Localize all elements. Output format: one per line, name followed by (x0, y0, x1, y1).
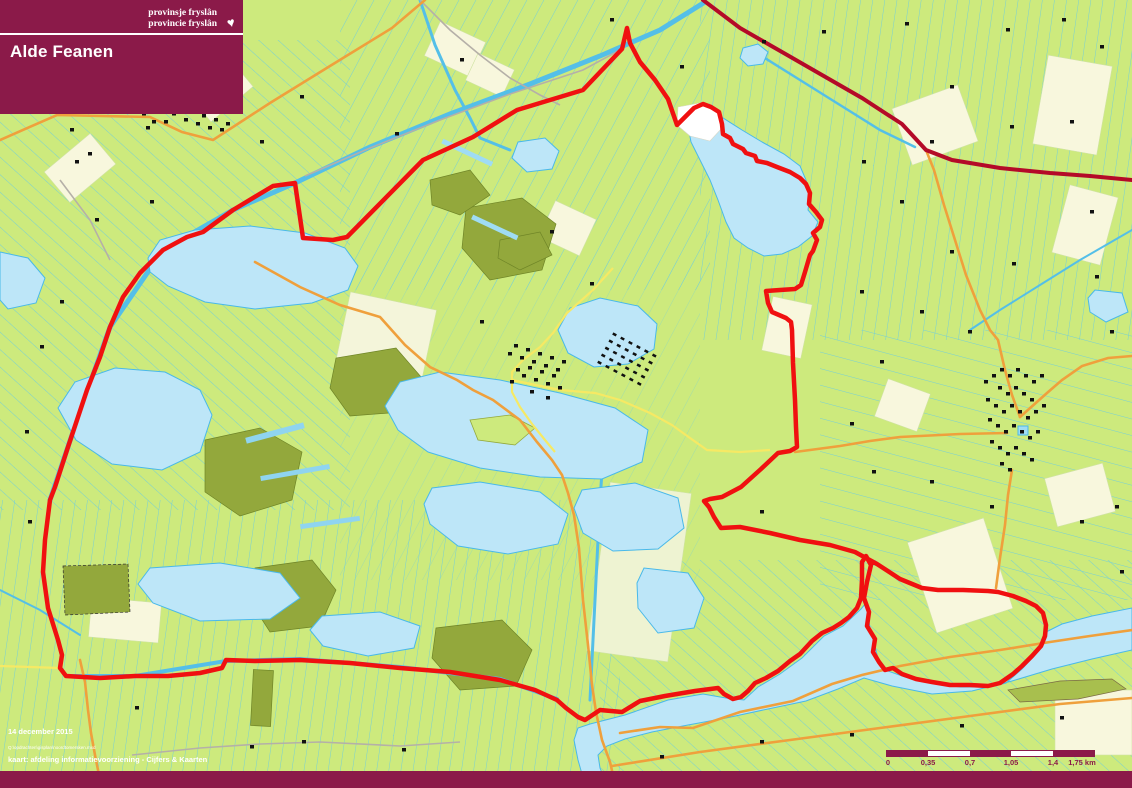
province-heart-icon: ♥ (226, 14, 237, 30)
scale-bar: 0 0,35 0,7 1,05 1,4 1,75 km (886, 750, 1094, 767)
map-canvas (0, 0, 1132, 788)
logo-line-dutch: provincie fryslân (148, 19, 217, 30)
scale-bar-segments (886, 750, 1095, 757)
bottom-brand-bar (0, 771, 1132, 788)
province-logo: provinsje fryslân provincie fryslân (148, 8, 217, 29)
map-credit: kaart: afdeling informatievoorziening - … (8, 755, 207, 764)
scale-segment (887, 751, 928, 756)
header-divider (0, 33, 243, 35)
map-date: 14 december 2015 (8, 727, 73, 736)
map-page: provinsje fryslân provincie fryslân ♥ Al… (0, 0, 1132, 788)
header-plate: provinsje fryslân provincie fryslân ♥ Al… (0, 0, 243, 114)
scale-segment (970, 751, 1011, 756)
scale-label: 0,7 (965, 758, 975, 767)
source-file-path: Q:\opdrachten\gisplan\noordtomersken.mxd (8, 745, 96, 750)
scale-labels: 0 0,35 0,7 1,05 1,4 1,75 km (886, 757, 1094, 767)
scale-label: 0,35 (921, 758, 936, 767)
scale-segment (928, 751, 969, 756)
scale-label: 0 (886, 758, 890, 767)
scale-segment (1011, 751, 1052, 756)
scale-label: 1,05 (1004, 758, 1019, 767)
page-title: Alde Feanen (10, 42, 113, 62)
scale-label: 1,4 (1048, 758, 1058, 767)
logo-line-frisian: provinsje fryslân (148, 8, 217, 19)
scale-segment (1053, 751, 1094, 756)
scale-label: 1,75 km (1068, 758, 1096, 767)
